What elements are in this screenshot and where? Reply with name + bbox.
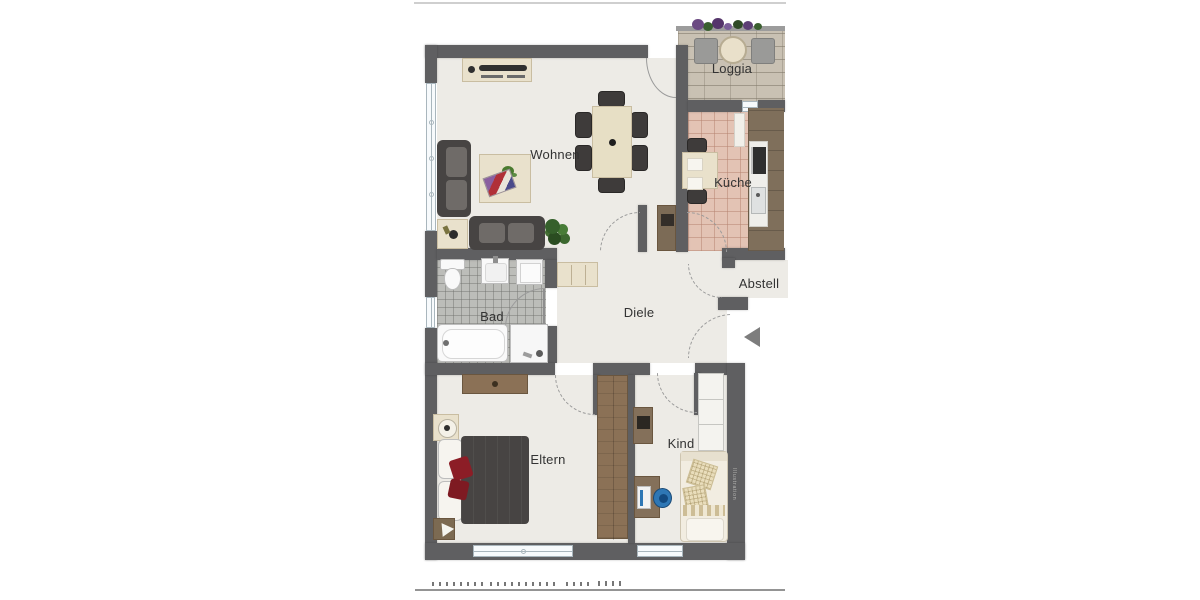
wardrobe-shelf-line xyxy=(699,399,723,400)
kitchen-chair xyxy=(687,138,707,153)
sideboard xyxy=(462,58,532,82)
room-label-wohnen: Wohnen xyxy=(520,147,590,162)
dresser-knob xyxy=(492,381,498,387)
lamp-dot xyxy=(444,425,450,431)
vertical-watermark: Illustration xyxy=(731,468,737,540)
window-kind-bottom xyxy=(637,545,683,557)
window-joint xyxy=(521,549,526,554)
wall-top-wohnen xyxy=(425,45,648,58)
dining-chair xyxy=(598,91,625,107)
window-joint xyxy=(429,120,434,125)
dining-table xyxy=(592,106,632,178)
wardrobe-divider xyxy=(613,376,614,540)
blanket-foot xyxy=(686,518,724,541)
window-eltern-bottom xyxy=(473,545,573,557)
floor-plan-page: Wohnen Loggia Küche Bad Diele Abstell El… xyxy=(0,0,1200,600)
window-wohnen-left xyxy=(426,83,436,231)
kids-bed xyxy=(680,451,728,542)
dining-chair xyxy=(598,177,625,193)
blanket-band xyxy=(683,505,725,516)
shower-head xyxy=(523,352,533,359)
door-arc-eltern xyxy=(555,375,595,415)
wardrobe-shelf-line xyxy=(699,424,723,425)
sofa-cushion xyxy=(446,147,467,177)
corner-lamp-table xyxy=(433,518,455,540)
tub-faucet xyxy=(443,340,449,346)
entrance-arrow-icon xyxy=(744,327,760,347)
desk-chair xyxy=(653,488,672,508)
hall-cabinet xyxy=(657,205,676,251)
washer-lid xyxy=(520,263,541,283)
room-label-diele: Diele xyxy=(609,305,669,320)
magazine xyxy=(482,169,516,198)
bathtub xyxy=(437,324,508,362)
wall-bedrooms-top-b xyxy=(593,363,650,375)
wall-bad-right-upper xyxy=(545,260,557,288)
cropped-caption-fragment xyxy=(566,582,594,586)
accent-pillow xyxy=(447,478,470,501)
room-label-eltern: Eltern xyxy=(518,452,578,467)
cropped-caption-fragment xyxy=(598,581,624,586)
sink xyxy=(751,187,766,214)
faucet xyxy=(756,193,760,197)
stove xyxy=(751,147,766,174)
loveseat xyxy=(469,216,545,250)
room-label-kueche: Küche xyxy=(708,175,758,190)
door-arc-kind xyxy=(657,373,697,413)
wall-left-middle xyxy=(425,231,437,297)
washing-machine xyxy=(516,259,543,285)
window-bad-left xyxy=(426,297,435,328)
sink-basin xyxy=(485,263,507,282)
door-arc-wohnen xyxy=(600,212,640,252)
sofa-cushion xyxy=(508,223,534,243)
wall-abstell-stub xyxy=(722,258,735,268)
tv-panel xyxy=(637,416,650,429)
laptop-screen xyxy=(640,490,643,506)
dresser xyxy=(462,374,528,394)
top-rule xyxy=(414,2,786,4)
chair-seat xyxy=(659,494,668,503)
table-center-detail xyxy=(609,139,616,146)
kids-shelf xyxy=(633,407,653,444)
wall-loggia-kitchen-a xyxy=(688,100,742,112)
bathroom-sink xyxy=(481,258,509,284)
room-label-kind: Kind xyxy=(651,436,711,451)
wall-left-upper xyxy=(425,45,437,83)
bed-headboard xyxy=(681,452,727,461)
sofa-cushion xyxy=(446,180,467,210)
kitchen-chair xyxy=(687,189,707,204)
kitchen-tall-cabinet xyxy=(734,113,745,147)
laptop xyxy=(637,486,651,509)
shower-drain xyxy=(536,350,543,357)
flower-boxes xyxy=(692,19,704,30)
sideboard-handle xyxy=(479,65,527,71)
sideboard-detail xyxy=(481,75,503,78)
door-arc-abstell xyxy=(688,264,722,298)
sofa xyxy=(437,140,471,217)
hall-sideboard xyxy=(557,262,598,287)
window-joint xyxy=(429,192,434,197)
sideboard-detail xyxy=(507,75,525,78)
kitchen-seat xyxy=(687,177,703,190)
dining-chair xyxy=(631,112,648,138)
potted-plant xyxy=(545,219,560,234)
sideboard-divider xyxy=(585,265,586,285)
door-arc-kueche xyxy=(687,212,727,252)
double-bed-duvet xyxy=(461,436,529,524)
door-arc-entry xyxy=(688,314,732,358)
cropped-caption-fragment xyxy=(490,582,560,586)
room-label-loggia: Loggia xyxy=(702,61,762,76)
corner-lamp xyxy=(436,519,454,537)
sideboard-divider xyxy=(571,265,572,285)
dining-chair xyxy=(575,112,592,138)
cropped-caption-fragment xyxy=(432,582,484,586)
kitchen-seat xyxy=(687,158,703,171)
nightstand xyxy=(433,414,459,441)
room-label-abstell: Abstell xyxy=(729,276,789,291)
loggia-round-table xyxy=(719,36,747,64)
dining-chair xyxy=(631,145,648,171)
bottom-rule xyxy=(415,589,785,591)
toilet-bowl xyxy=(444,268,461,290)
window-joint xyxy=(429,156,434,161)
sofa-cushion xyxy=(479,223,505,243)
door-arc-loggia xyxy=(646,58,676,98)
room-label-bad: Bad xyxy=(472,309,512,324)
sideboard-knob xyxy=(468,66,475,73)
tub-inner xyxy=(442,329,505,359)
wardrobe-eltern xyxy=(597,375,628,539)
cabinet-panel xyxy=(661,214,674,226)
wall-abstell-bottom xyxy=(718,297,748,310)
side-table xyxy=(437,219,468,249)
shower xyxy=(510,324,548,363)
